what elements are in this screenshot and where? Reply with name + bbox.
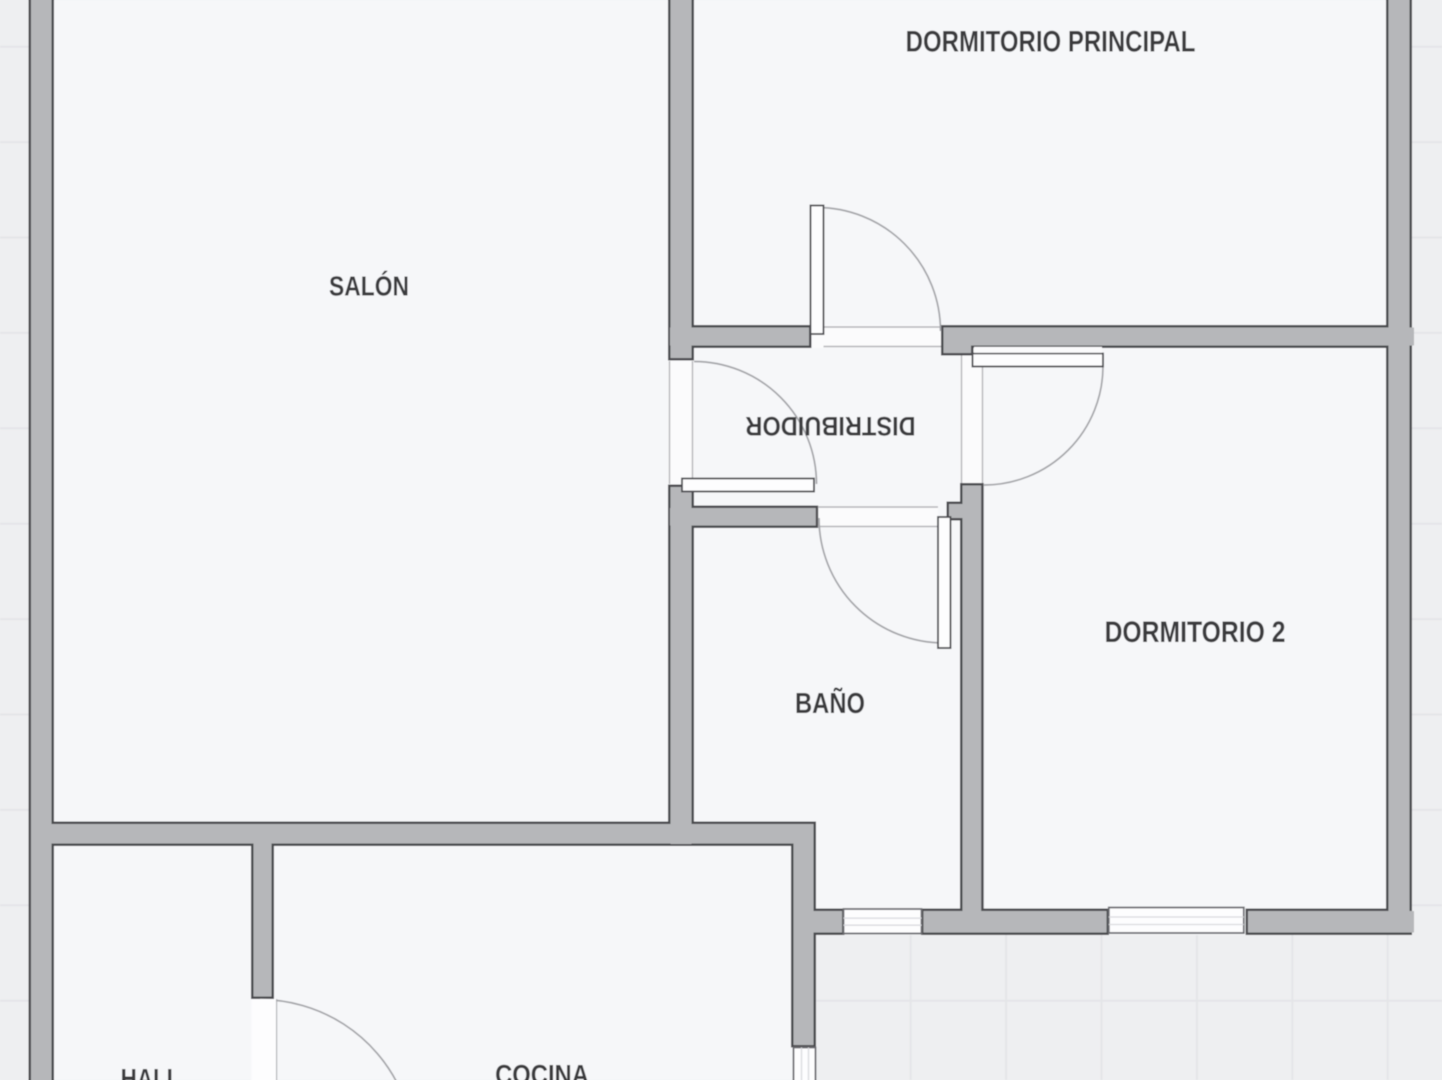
svg-text:DORMITORIO 2: DORMITORIO 2 xyxy=(1105,615,1286,649)
svg-text:DISTRIBUIDOR: DISTRIBUIDOR xyxy=(745,411,915,441)
svg-text:COCINA: COCINA xyxy=(495,1058,589,1080)
svg-text:SALÓN: SALÓN xyxy=(329,269,409,302)
svg-text:HALL: HALL xyxy=(121,1064,181,1080)
svg-text:DORMITORIO PRINCIPAL: DORMITORIO PRINCIPAL xyxy=(906,24,1196,58)
svg-text:BAÑO: BAÑO xyxy=(795,687,865,720)
